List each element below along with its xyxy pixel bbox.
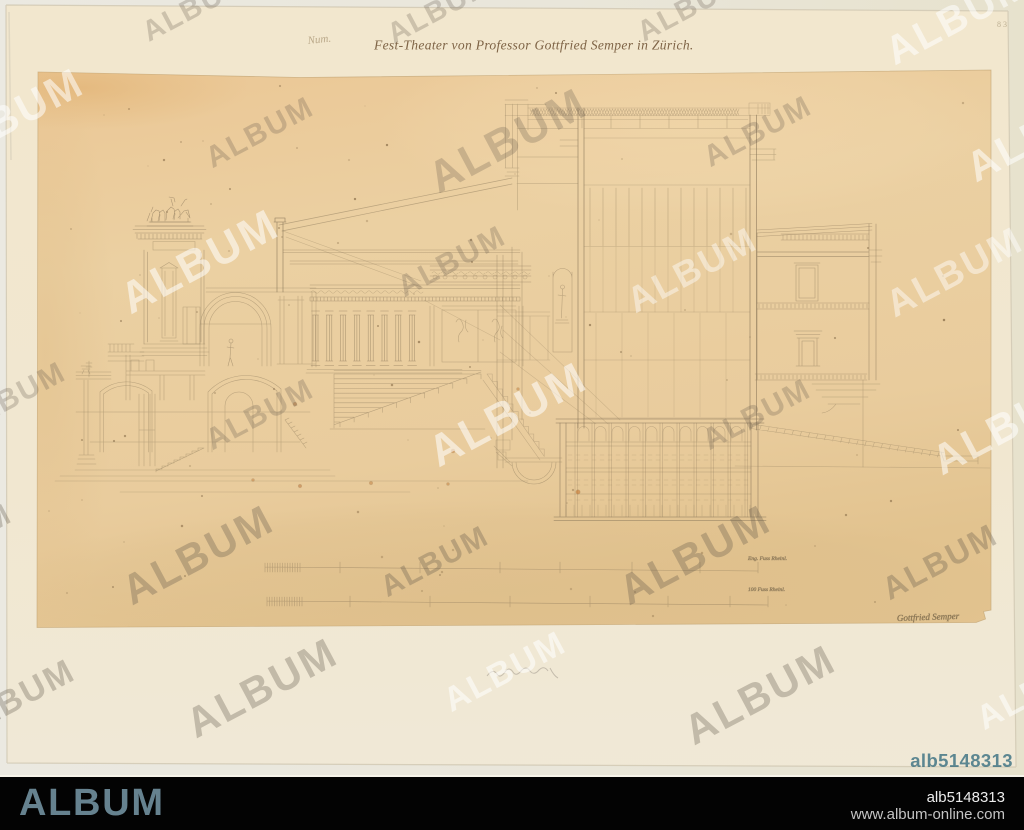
- svg-text:Num.: Num.: [306, 33, 332, 47]
- svg-text:Eng. Fuss Rheinl.: Eng. Fuss Rheinl.: [747, 556, 787, 562]
- svg-text:100 Fuss Rheinl.: 100 Fuss Rheinl.: [748, 587, 785, 593]
